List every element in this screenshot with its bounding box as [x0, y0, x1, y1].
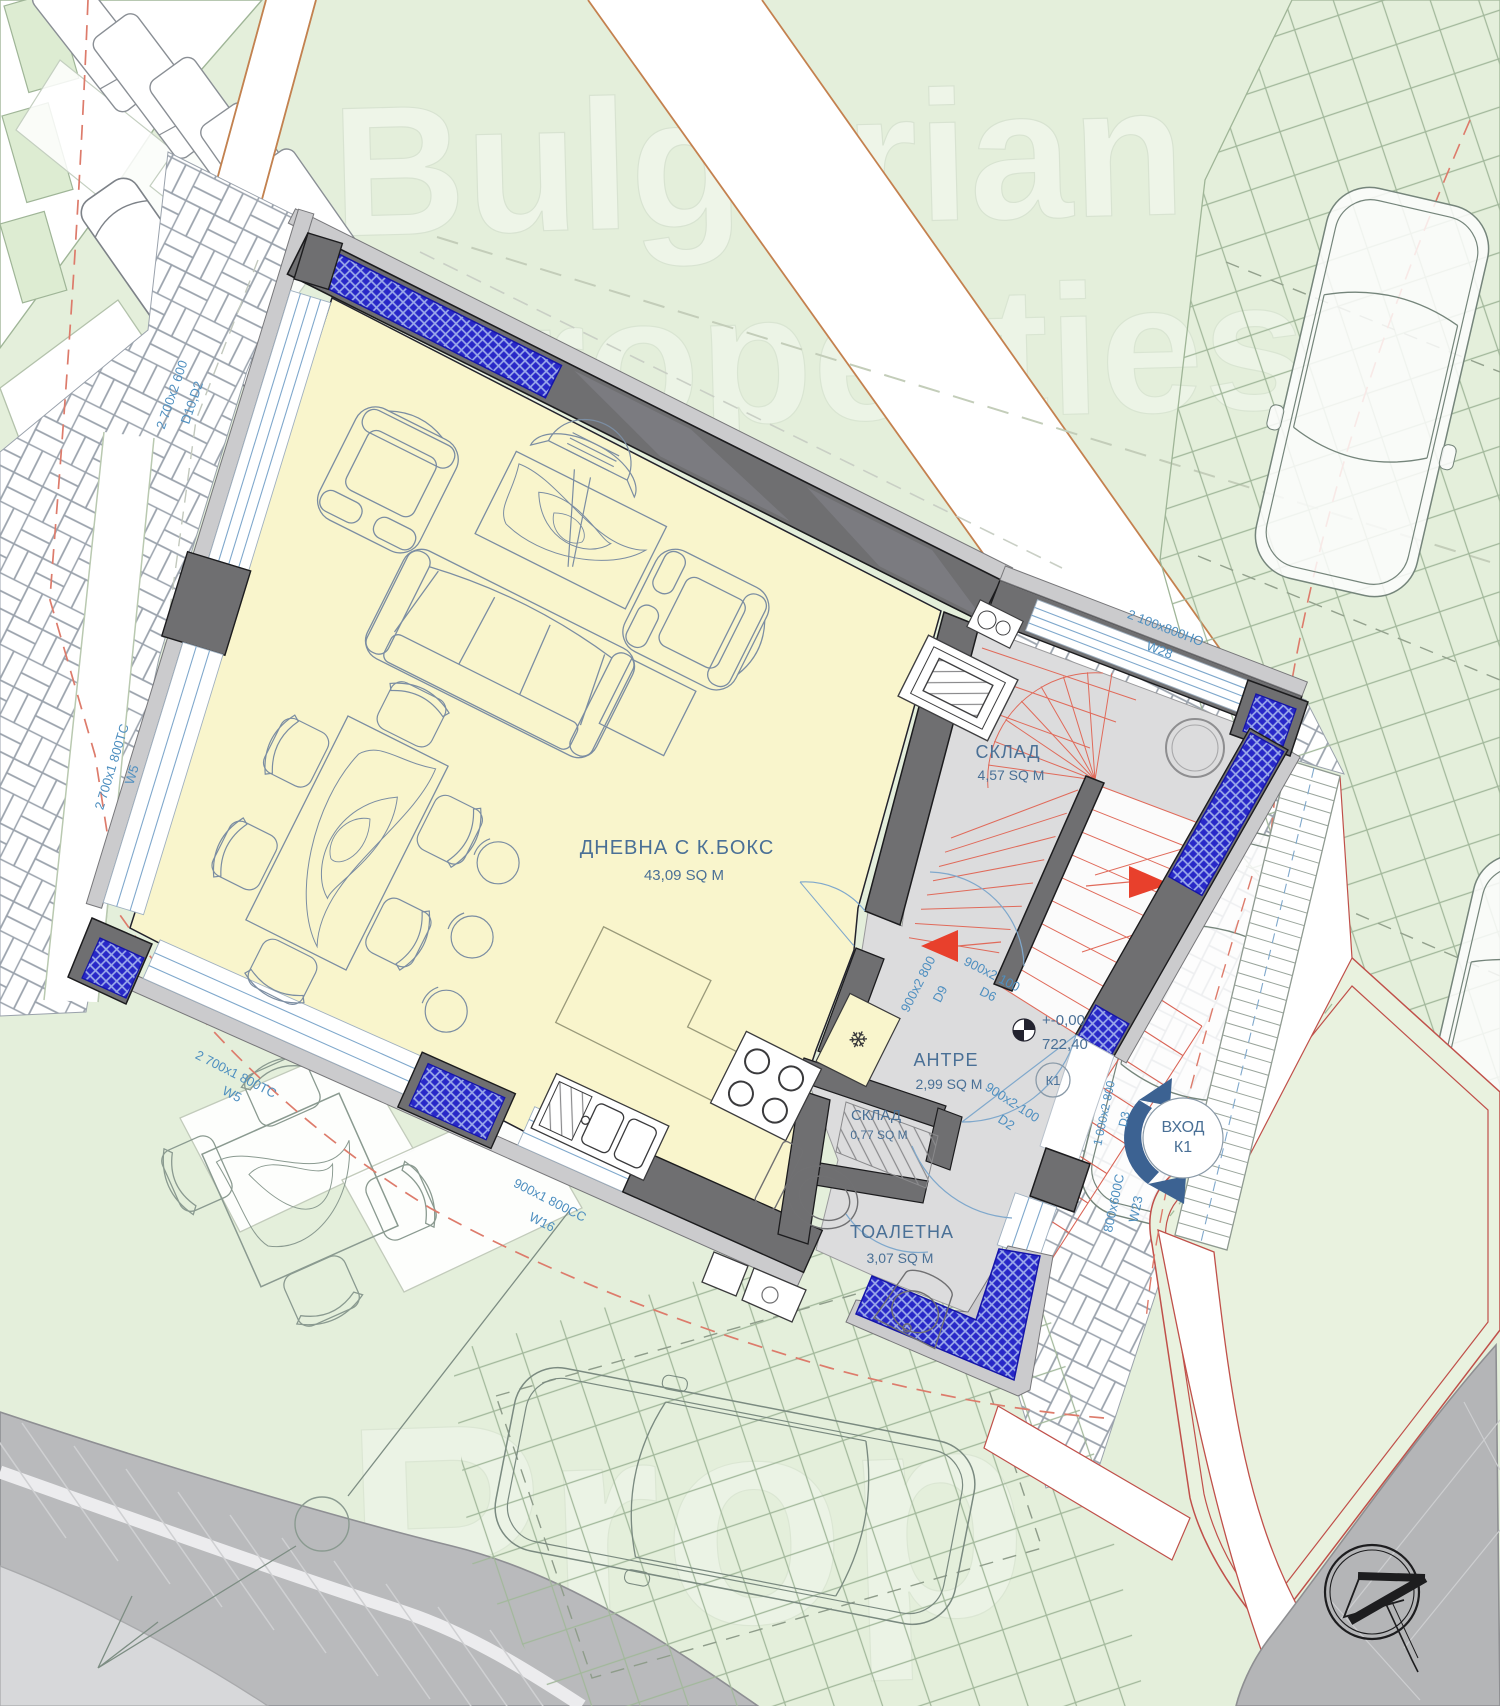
svg-text:ТОАЛЕТНА: ТОАЛЕТНА: [850, 1222, 954, 1242]
svg-text:43,09 SQ M: 43,09 SQ M: [644, 867, 724, 884]
svg-text:СКЛАД: СКЛАД: [851, 1107, 901, 1124]
svg-text:+-0,00: +-0,00: [1042, 1012, 1085, 1029]
svg-text:4,57 SQ M: 4,57 SQ M: [978, 767, 1045, 783]
svg-text:2,99 SQ M: 2,99 SQ M: [916, 1076, 983, 1092]
svg-text:722,40: 722,40: [1042, 1036, 1088, 1053]
svg-text:0,77 SQ M: 0,77 SQ M: [850, 1128, 907, 1142]
svg-text:СКЛАД: СКЛАД: [975, 742, 1040, 762]
svg-text:АНТРЕ: АНТРЕ: [913, 1050, 978, 1070]
svg-text:3,07 SQ M: 3,07 SQ M: [867, 1250, 934, 1266]
svg-text:ВХОД: ВХОД: [1161, 1119, 1204, 1136]
svg-text:К1: К1: [1174, 1139, 1192, 1156]
svg-text:ДНЕВНА С К.БОКС: ДНЕВНА С К.БОКС: [580, 837, 775, 859]
svg-text:К1: К1: [1046, 1073, 1061, 1088]
